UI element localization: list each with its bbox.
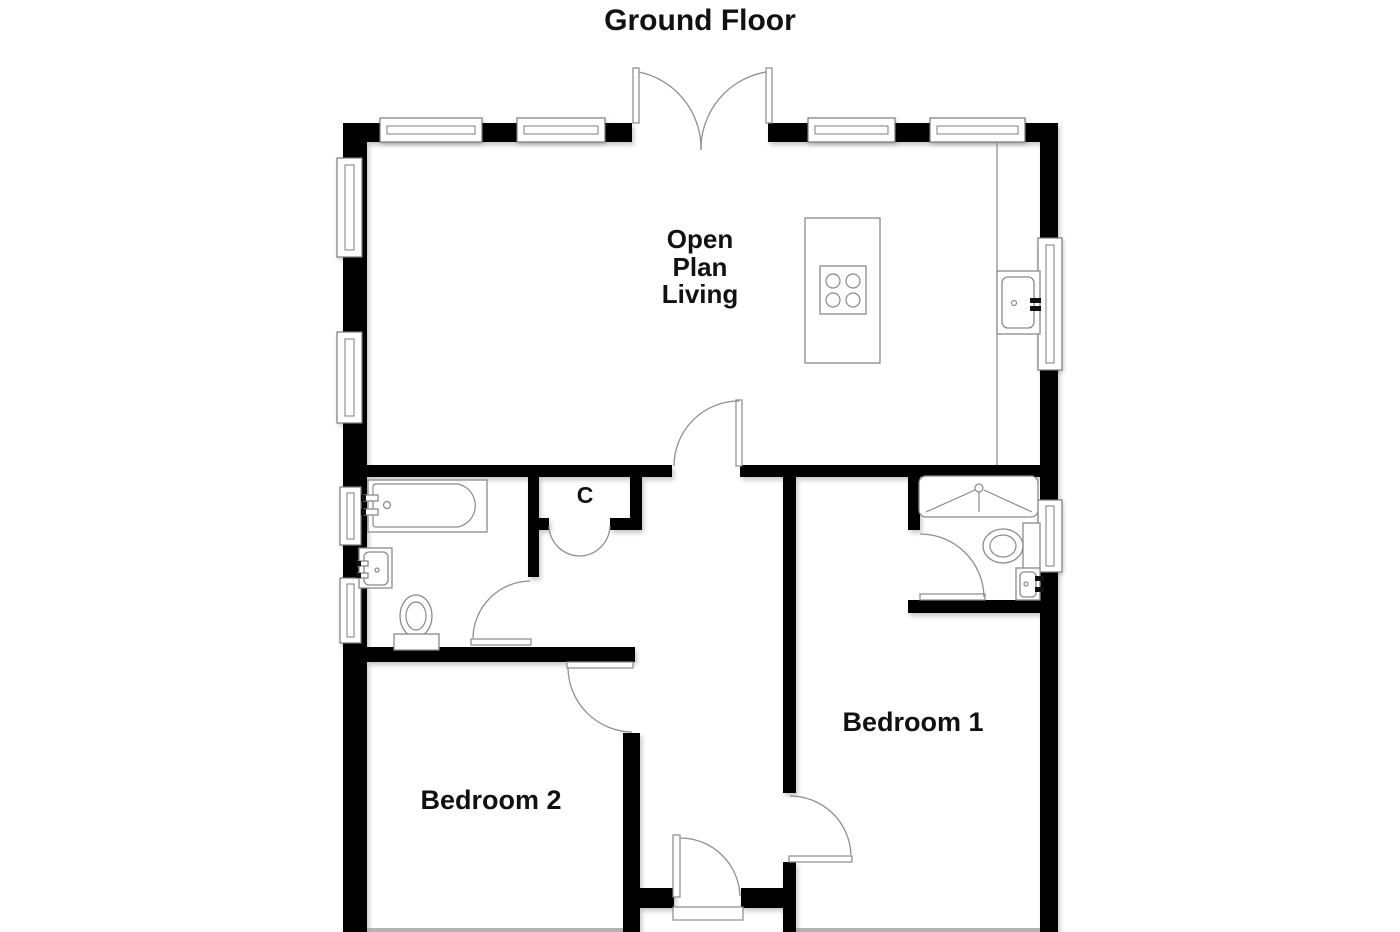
kitchen-sink-icon xyxy=(997,271,1041,334)
wall xyxy=(740,465,1058,477)
windows xyxy=(337,118,1062,643)
wall xyxy=(343,647,635,662)
room-label-cupboard: C xyxy=(577,482,594,508)
front-door-threshold xyxy=(673,907,743,920)
kitchen-island xyxy=(805,218,880,363)
wall xyxy=(528,465,539,577)
bedroom1-door xyxy=(789,796,852,862)
washbasin-icon xyxy=(356,548,392,588)
wall xyxy=(343,465,672,477)
bath-icon xyxy=(361,480,487,532)
wall xyxy=(630,465,642,530)
french-doors xyxy=(633,68,772,150)
cutoff-wall-edge xyxy=(796,928,1040,932)
ensuite-door xyxy=(920,534,985,600)
window xyxy=(1038,238,1062,370)
shower-icon xyxy=(919,476,1038,517)
washbasin-icon xyxy=(1016,568,1044,600)
room-label-bedroom2: Bedroom 2 xyxy=(420,785,561,815)
wall xyxy=(610,518,630,530)
bedroom2-door xyxy=(567,662,633,732)
bathroom-door xyxy=(471,581,531,645)
wall xyxy=(539,518,549,530)
wall xyxy=(908,600,1040,613)
living-room-door xyxy=(674,400,742,466)
fixtures xyxy=(356,142,1044,650)
toilet-icon xyxy=(394,595,439,650)
wall xyxy=(640,888,674,908)
floor-plan-drawing: Ground Floor Open Plan Living C Bedroom … xyxy=(0,0,1400,932)
window xyxy=(1038,500,1062,572)
window xyxy=(517,118,605,142)
cutoff-wall-edge xyxy=(367,928,623,932)
window xyxy=(930,118,1025,142)
window xyxy=(337,332,362,423)
wall xyxy=(623,733,640,932)
window xyxy=(337,158,362,257)
room-label-line: Open xyxy=(667,224,733,254)
window xyxy=(380,118,482,142)
window xyxy=(340,578,361,643)
front-door xyxy=(673,835,743,920)
plan-title: Ground Floor xyxy=(604,4,796,37)
hob-icon xyxy=(820,266,866,314)
wall xyxy=(783,862,796,932)
wall xyxy=(783,477,796,793)
wall xyxy=(908,465,920,530)
window xyxy=(808,118,895,142)
toilet-icon xyxy=(983,523,1040,569)
room-label-bedroom1: Bedroom 1 xyxy=(842,707,983,737)
wall xyxy=(741,888,783,908)
window xyxy=(340,487,361,545)
room-label-open-plan-living: Open Plan Living xyxy=(662,224,739,309)
room-label-line: Plan xyxy=(673,252,728,282)
room-label-line: Living xyxy=(662,279,739,309)
floor-plan: Ground Floor Open Plan Living C Bedroom … xyxy=(0,0,1400,932)
cupboard-doors xyxy=(549,526,610,556)
